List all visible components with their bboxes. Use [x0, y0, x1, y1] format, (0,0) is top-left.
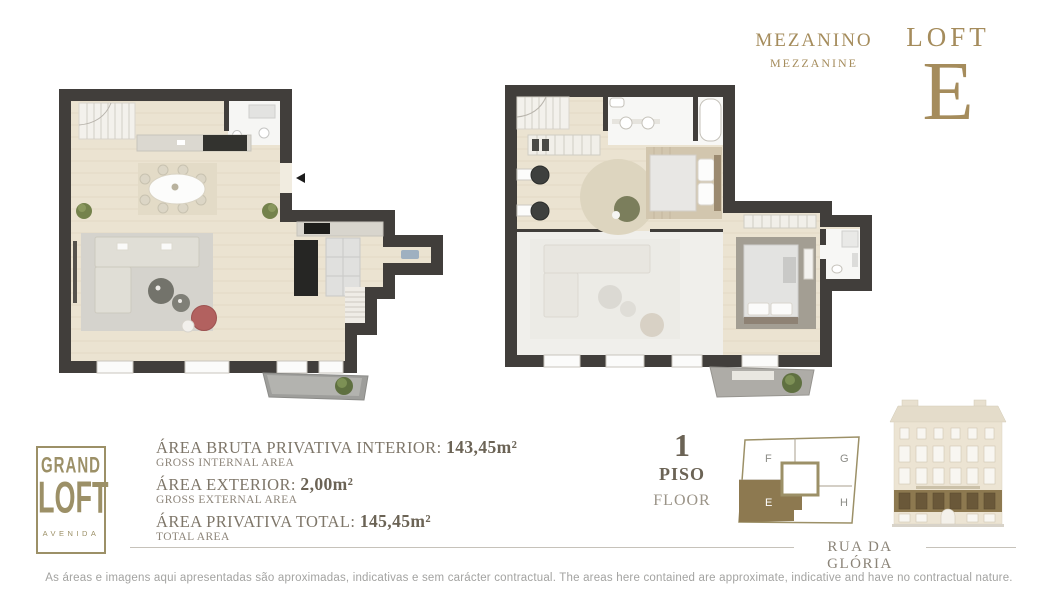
floor-indicator: 1 PISO FLOOR: [648, 430, 716, 510]
area-total-label: ÁREA PRIVATIVA TOTAL: 145,45m²: [156, 512, 517, 531]
unit-f-label: F: [765, 453, 772, 465]
unit-location-diagram: F G E H: [736, 434, 864, 536]
disclaimer-text: As áreas e imagens aqui apresentadas são…: [0, 572, 1058, 584]
loft-letter: E: [896, 55, 1000, 129]
brand-logo: GRAND LOFT AVENIDA: [36, 446, 106, 554]
sink: [832, 265, 842, 273]
balcony-piso1: [263, 373, 368, 400]
entry-door: [280, 163, 305, 193]
balcony-mezzanine: [710, 367, 814, 397]
wardrobe-row: [528, 135, 600, 155]
bench: [804, 249, 813, 279]
desk-chair: [531, 166, 549, 184]
balcony-rail: [916, 486, 980, 489]
area-exterior-label: ÁREA EXTERIOR: 2,00m²: [156, 475, 517, 494]
kitchen-counter-top: [137, 135, 251, 151]
logo-avenida: AVENIDA: [38, 529, 104, 538]
living-room: [73, 233, 217, 332]
floor-label-pt: PISO: [648, 464, 716, 485]
floor-label-en: FLOOR: [648, 492, 716, 510]
sink: [620, 117, 632, 129]
floor-plan-piso1: [57, 83, 449, 403]
street-divider-right: [926, 547, 1016, 548]
toilet: [610, 98, 624, 107]
unit-h-label: H: [840, 497, 848, 509]
area-interior-label: ÁREA BRUTA PRIVATIVA INTERIOR: 143,45m²: [156, 438, 517, 457]
brochure-page: MEZANINO MEZZANINE LOFT E GRAND LOFT AVE…: [0, 0, 1058, 595]
floor-number: 1: [648, 430, 716, 460]
entrance-door: [941, 509, 955, 524]
void-open-below: [517, 229, 723, 355]
plan-label: MEZANINO MEZZANINE: [738, 30, 890, 71]
unit-g-label: G: [840, 453, 849, 465]
entry-arrow-icon: [296, 173, 305, 183]
area-interior-en: GROSS INTERNAL AREA: [156, 457, 517, 470]
area-exterior-value: 2,00m²: [300, 474, 353, 494]
coffee-table: [148, 278, 174, 304]
area-exterior-en: GROSS EXTERNAL AREA: [156, 494, 517, 507]
street-label: RUA DA GLÓRIA: [794, 539, 926, 573]
logo-loft: LOFT: [38, 473, 104, 524]
shower: [842, 231, 858, 247]
bathtub: [700, 99, 721, 141]
area-interior-value: 143,45m²: [446, 437, 517, 457]
floor-plan-mezzanine: [500, 83, 880, 403]
courtyard: [782, 463, 818, 495]
sink: [642, 117, 654, 129]
sofa: [95, 237, 199, 267]
bathroom-mezzanine: [603, 97, 723, 145]
plan-label-pt: MEZANINO: [738, 30, 890, 52]
unit-e-label: E: [765, 497, 772, 509]
bed: [650, 155, 696, 211]
cooktop: [304, 223, 330, 234]
bathroom-small: [820, 229, 860, 279]
kitchen-island: [294, 240, 318, 296]
roof: [890, 406, 1006, 422]
street-divider-left: [130, 547, 794, 548]
stairs-piso1: [79, 103, 135, 139]
area-total-value: 145,45m²: [360, 511, 431, 531]
area-total-en: TOTAL AREA: [156, 531, 517, 544]
areas-block: ÁREA BRUTA PRIVATIVA INTERIOR: 143,45m² …: [156, 438, 517, 549]
round-rug: [580, 159, 656, 235]
loft-title: LOFT E: [896, 22, 1000, 129]
red-armchair: [192, 306, 217, 331]
plan-label-en: MEZZANINE: [738, 56, 890, 71]
stairs-mezzanine: [517, 97, 569, 129]
dining-area: [138, 163, 217, 215]
tv-sideboard: [73, 241, 77, 303]
bedroom-1: [646, 147, 722, 219]
building-facade: [886, 398, 1010, 532]
